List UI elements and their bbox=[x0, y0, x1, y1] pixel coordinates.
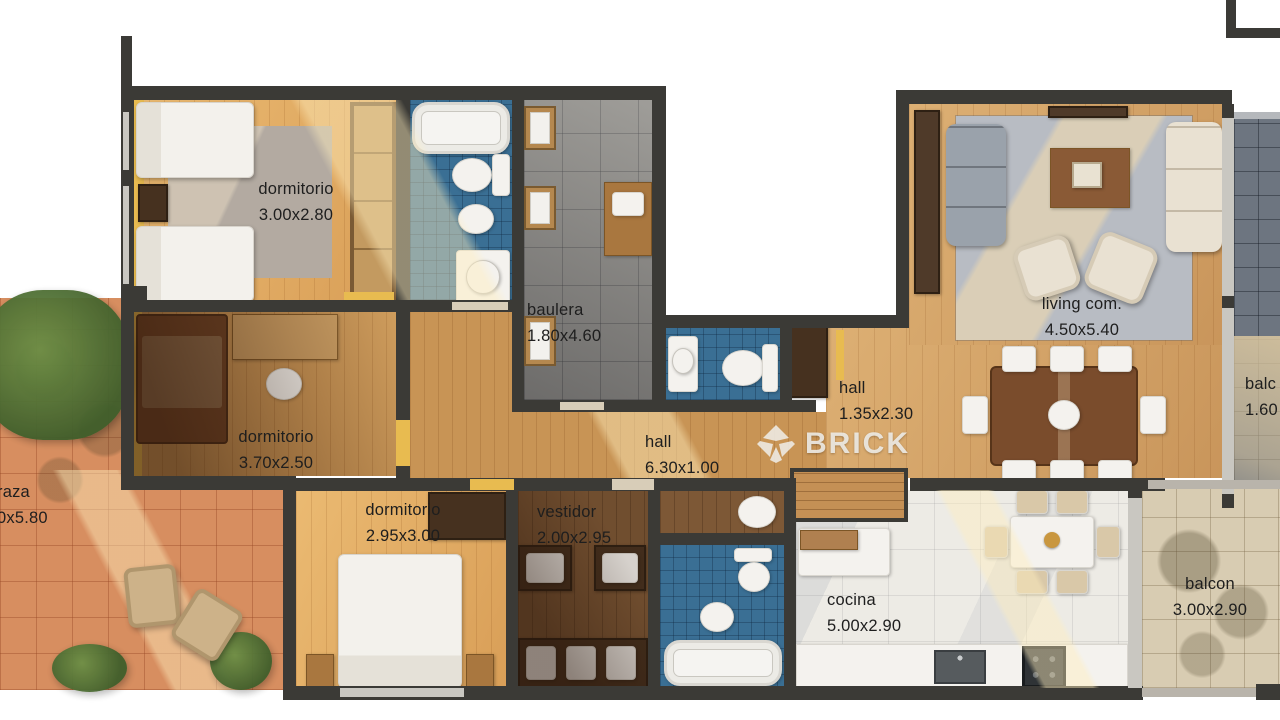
door-opening bbox=[452, 302, 508, 310]
room-name: hall bbox=[645, 433, 672, 451]
brick-watermark: BRICK bbox=[756, 424, 910, 464]
room-label-dormitorio-1: dormitorio 3.00x2.80 bbox=[220, 176, 372, 228]
wall bbox=[784, 478, 796, 690]
table-decor bbox=[1072, 162, 1102, 188]
room-dims: 4.50x5.40 bbox=[1045, 321, 1119, 339]
wall bbox=[506, 490, 518, 690]
dining-chair bbox=[1050, 346, 1084, 372]
bathtub bbox=[664, 640, 782, 686]
plant bbox=[52, 644, 127, 692]
room-name: hall bbox=[839, 379, 866, 397]
door-jamb bbox=[396, 420, 410, 466]
kitchen-chair bbox=[1016, 490, 1048, 514]
desk-chair bbox=[266, 368, 302, 400]
toilet-tank bbox=[734, 548, 772, 562]
kitchen-chair bbox=[1056, 490, 1088, 514]
room-label-terraza: raza 0x5.80 bbox=[0, 479, 48, 531]
wall bbox=[1128, 488, 1142, 498]
sink-basin bbox=[466, 260, 500, 294]
wall bbox=[896, 90, 1232, 104]
room-dims: 2.00x2.95 bbox=[537, 529, 611, 547]
wall bbox=[910, 478, 1165, 491]
room-label-hall-1: hall 1.35x2.30 bbox=[839, 375, 913, 427]
bidet bbox=[700, 602, 734, 632]
brick-watermark-text: BRICK bbox=[805, 427, 910, 461]
bed-blanket bbox=[142, 336, 222, 408]
toilet bbox=[452, 158, 492, 192]
kitchen-chair bbox=[1096, 526, 1120, 558]
room-label-cocina: cocina 5.00x2.90 bbox=[827, 587, 901, 639]
bidet bbox=[458, 204, 494, 234]
bed bbox=[338, 554, 462, 688]
wall bbox=[283, 478, 296, 690]
bed bbox=[136, 226, 254, 302]
window bbox=[123, 186, 129, 284]
kitchen-chair bbox=[984, 526, 1008, 558]
stove bbox=[1022, 646, 1066, 688]
shelf-box bbox=[524, 106, 556, 150]
dining-chair bbox=[1098, 346, 1132, 372]
floor-plan: dormitorio 3.00x2.80 baulera 1.80x4.60 l… bbox=[0, 0, 1280, 720]
desk bbox=[232, 314, 338, 360]
centerpiece bbox=[1048, 400, 1080, 430]
room-dims: 0x5.80 bbox=[0, 509, 48, 527]
closet-box bbox=[606, 646, 636, 680]
tree-canopy bbox=[0, 290, 130, 440]
window bbox=[123, 112, 129, 170]
room-label-hall-2: hall 6.30x1.00 bbox=[645, 429, 719, 481]
room-dims: 2.95x3.00 bbox=[366, 527, 440, 545]
lounge-chair bbox=[123, 563, 181, 628]
storage-box bbox=[612, 192, 644, 216]
dining-chair bbox=[1002, 346, 1036, 372]
room-name: vestidor bbox=[537, 503, 596, 521]
room-name: living com. bbox=[1042, 295, 1122, 313]
door-opening bbox=[470, 479, 514, 490]
room-dims: 1.35x2.30 bbox=[839, 405, 913, 423]
wall bbox=[121, 36, 132, 88]
wall bbox=[121, 298, 134, 490]
parapet bbox=[1234, 112, 1280, 119]
toilet-tank bbox=[492, 154, 510, 196]
room-name: balc bbox=[1245, 375, 1276, 393]
room-dims: 1.60 bbox=[1245, 401, 1278, 419]
island-top bbox=[800, 530, 858, 550]
shelf-box bbox=[524, 186, 556, 230]
wall bbox=[648, 533, 796, 545]
nightstand bbox=[138, 184, 168, 222]
wall bbox=[1222, 296, 1234, 308]
closet-box bbox=[602, 553, 638, 583]
wall bbox=[396, 100, 410, 300]
room-dims: 1.80x4.60 bbox=[527, 327, 601, 345]
wall bbox=[652, 86, 666, 412]
hall-closet bbox=[788, 318, 828, 398]
hall-mini bbox=[410, 312, 512, 412]
wall bbox=[780, 315, 792, 412]
media-unit bbox=[1048, 106, 1128, 118]
wall bbox=[1256, 684, 1280, 700]
parapet bbox=[1148, 480, 1280, 489]
wall bbox=[896, 90, 909, 328]
wall bbox=[121, 476, 296, 490]
toilet bbox=[738, 562, 770, 592]
tv-sideboard bbox=[914, 110, 940, 294]
closet-box bbox=[566, 646, 596, 680]
room-label-baulera: baulera 1.80x4.60 bbox=[527, 297, 601, 349]
room-label-living: living com. 4.50x5.40 bbox=[1006, 291, 1158, 343]
room-name: cocina bbox=[827, 591, 876, 609]
nightstand bbox=[466, 654, 494, 688]
nightstand bbox=[306, 654, 334, 688]
room-label-dormitorio-3: dormitorio 2.95x3.00 bbox=[327, 497, 479, 549]
dining-chair bbox=[962, 396, 988, 434]
sink-basin bbox=[738, 496, 776, 528]
window bbox=[340, 688, 464, 697]
wall bbox=[648, 490, 660, 690]
room-label-dormitorio-2: dormitorio 3.70x2.50 bbox=[200, 424, 352, 476]
room-balcon-right bbox=[1234, 112, 1280, 508]
closet-box bbox=[526, 646, 556, 680]
room-dims: 3.70x2.50 bbox=[239, 454, 313, 472]
brick-logo-icon bbox=[756, 424, 796, 464]
kitchen-chair bbox=[1056, 570, 1088, 594]
door-jamb bbox=[836, 330, 844, 380]
table-decor bbox=[1044, 532, 1060, 548]
room-dims: 6.30x1.00 bbox=[645, 459, 719, 477]
room-dims: 3.00x2.80 bbox=[259, 206, 333, 224]
sofa bbox=[946, 124, 1006, 246]
sink-basin bbox=[672, 348, 694, 374]
wall bbox=[1222, 494, 1234, 508]
wall bbox=[1226, 28, 1280, 38]
wall bbox=[128, 86, 654, 100]
toilet bbox=[722, 350, 764, 386]
closet-box bbox=[526, 553, 564, 583]
sofa bbox=[1166, 122, 1222, 252]
room-name: dormitorio bbox=[238, 428, 313, 446]
room-name: baulera bbox=[527, 301, 583, 319]
wall bbox=[1222, 104, 1234, 118]
room-name: dormitorio bbox=[258, 180, 333, 198]
wood-deck-counter bbox=[790, 468, 908, 522]
bathtub bbox=[412, 102, 510, 154]
dining-chair bbox=[1140, 396, 1166, 434]
door-opening bbox=[560, 402, 604, 410]
room-label-balcon-bottom: balcon 3.00x2.90 bbox=[1134, 571, 1280, 623]
room-dims: 3.00x2.90 bbox=[1173, 601, 1247, 619]
bed bbox=[136, 102, 254, 178]
toilet-tank bbox=[762, 344, 778, 392]
room-dims: 5.00x2.90 bbox=[827, 617, 901, 635]
wall bbox=[512, 100, 524, 400]
room-name: balcon bbox=[1185, 575, 1235, 593]
kitchen-sink bbox=[934, 650, 986, 684]
room-label-balcon-right: balc 1.60 bbox=[1245, 371, 1278, 423]
room-label-vestidor: vestidor 2.00x2.95 bbox=[537, 499, 611, 551]
kitchen-chair bbox=[1016, 570, 1048, 594]
room-name: dormitorio bbox=[365, 501, 440, 519]
room-name: raza bbox=[0, 483, 30, 501]
wall bbox=[128, 300, 396, 312]
